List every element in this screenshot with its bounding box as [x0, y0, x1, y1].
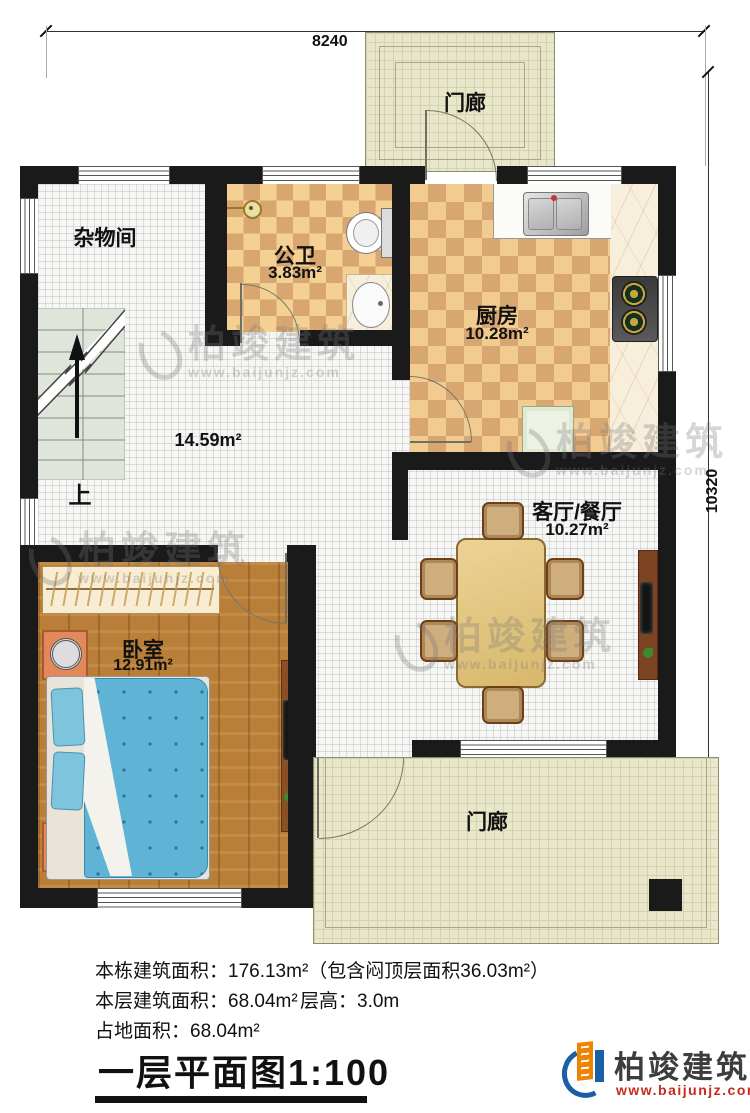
- wall: [205, 166, 227, 346]
- floor-plan: 8240 10320 门廊: [0, 0, 750, 1113]
- extension-line: [705, 26, 706, 166]
- extension-line: [46, 26, 47, 78]
- window: [78, 166, 170, 184]
- stove-burner: [621, 309, 647, 335]
- wall: [497, 166, 527, 184]
- porch-column: [649, 879, 682, 911]
- note-floor-area: 本层建筑面积：68.04m²: [95, 986, 298, 1013]
- window: [20, 198, 38, 274]
- brand-logo-tower-icon: [595, 1050, 604, 1082]
- shower-head-dot: [249, 206, 253, 210]
- brand-logo-building-icon: [577, 1041, 593, 1081]
- bedroom-area: 12.91m²: [98, 657, 188, 675]
- stairs-up-label: 上: [62, 476, 98, 510]
- pillow: [51, 687, 86, 747]
- note-floor-height: 层高：3.0m: [300, 986, 399, 1013]
- sink-basin-left: [528, 198, 554, 230]
- wall: [392, 166, 410, 380]
- wall: [392, 470, 408, 540]
- basin-faucet: [378, 301, 383, 306]
- wall: [658, 370, 676, 758]
- sink-basin-right: [556, 198, 582, 230]
- window: [97, 888, 242, 908]
- right-dimension-label: 10320: [704, 446, 722, 536]
- shower-head-icon: [243, 200, 262, 219]
- wall: [20, 888, 97, 908]
- brand-url: www.baijunjz.com: [616, 1082, 750, 1098]
- plant-icon: [643, 648, 653, 658]
- dining-chair: [420, 558, 458, 600]
- nightstand-lamp: [50, 638, 82, 670]
- kitchen-area: 10.28m²: [452, 324, 542, 344]
- brand-logo: 柏竣建筑 www.baijunjz.com: [560, 1040, 750, 1104]
- title-underline: [95, 1096, 367, 1103]
- stove-burner: [621, 281, 647, 307]
- window: [262, 166, 360, 184]
- fridge-icon: [522, 406, 574, 454]
- wall: [392, 452, 658, 470]
- dining-table: [456, 538, 546, 688]
- stairs: [37, 308, 125, 480]
- pillow: [51, 751, 86, 811]
- wall: [605, 740, 676, 758]
- wall: [20, 272, 38, 498]
- window: [460, 740, 607, 758]
- wardrobe-hangers: [46, 572, 214, 606]
- storage-room-label: 杂物间: [40, 222, 170, 252]
- brand-name: 柏竣建筑: [614, 1042, 750, 1087]
- window: [527, 166, 622, 184]
- dining-chair: [546, 620, 584, 662]
- top-dimension-label: 8240: [312, 33, 348, 51]
- window: [658, 275, 676, 372]
- sink-faucet: [551, 195, 557, 201]
- note-total-area: 本栋建筑面积：176.13m²（包含闷顶层面积36.03m²）: [95, 956, 549, 983]
- toilet-bowl: [353, 219, 379, 247]
- hall-area: 14.59m²: [160, 430, 256, 451]
- living-area: 10.27m²: [512, 520, 642, 540]
- tv-living-icon: [640, 582, 653, 634]
- note-footprint: 占地面积：68.04m²: [95, 1016, 260, 1043]
- wall: [20, 560, 38, 908]
- wall: [412, 740, 460, 758]
- wall: [658, 166, 676, 275]
- bathroom-area: 3.83m²: [250, 263, 340, 283]
- wash-basin-icon: [352, 282, 390, 328]
- wall: [20, 545, 218, 562]
- wall: [20, 166, 38, 198]
- page-title: 一层平面图1:100: [98, 1044, 390, 1096]
- wall: [205, 330, 240, 346]
- wall: [288, 545, 316, 908]
- wall: [300, 330, 392, 346]
- porch-bottom-label: 门廊: [442, 806, 532, 836]
- dining-chair: [546, 558, 584, 600]
- dining-chair: [482, 686, 524, 724]
- dining-chair: [420, 620, 458, 662]
